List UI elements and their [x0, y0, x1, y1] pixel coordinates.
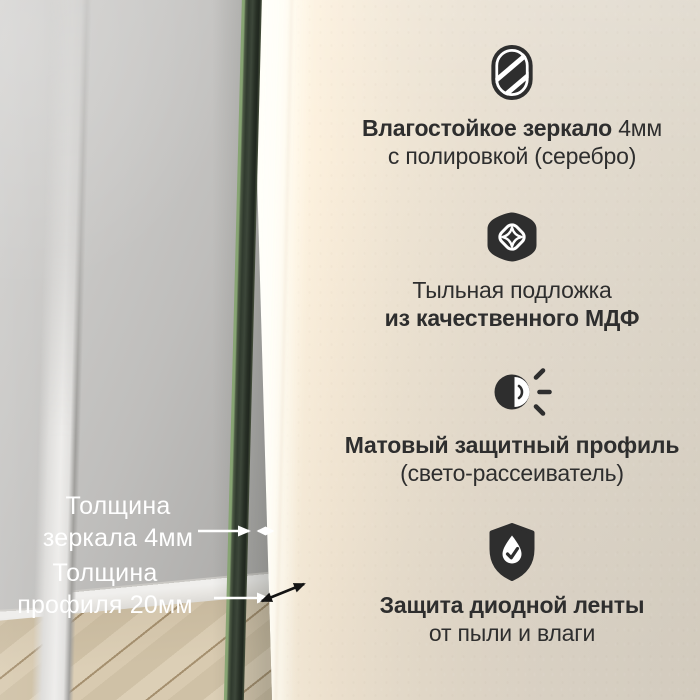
feature-text-line1: Тыльная подложка — [323, 277, 700, 305]
profile-thickness-label: Толщина профиля 20мм — [10, 557, 200, 621]
feature-text-line2: (свето-рассеиватель) — [323, 460, 700, 488]
feature-text-line2: с полировкой (серебро) — [323, 143, 700, 171]
mirror-icon — [323, 44, 700, 101]
product-infographic: Влагостойкое зеркало 4мм с полировкой (с… — [0, 0, 700, 700]
mirror-thickness-label: Толщина зеркала 4мм — [28, 490, 208, 554]
feature-text-line1: Защита диодной ленты — [323, 592, 700, 620]
mdf-backing-icon — [323, 210, 700, 264]
label-line2: зеркала 4мм — [28, 522, 208, 554]
label-line1: Толщина — [10, 557, 200, 589]
feature-text-line2: от пыли и влаги — [323, 620, 700, 648]
label-line2: профиля 20мм — [10, 589, 200, 621]
feature-text-line1: Влагостойкое зеркало 4мм — [323, 115, 700, 143]
feature-matte-profile: Матовый защитный профиль (свето-рассеива… — [323, 363, 700, 487]
feature-mdf-backing: Тыльная подложка из качественного МДФ — [323, 210, 700, 332]
label-line1: Толщина — [28, 490, 208, 522]
shield-check-icon — [323, 521, 700, 583]
feature-mirror: Влагостойкое зеркало 4мм с полировкой (с… — [323, 44, 700, 170]
feature-text-line2: из качественного МДФ — [323, 305, 700, 333]
feature-led-protection: Защита диодной ленты от пыли и влаги — [323, 521, 700, 647]
feature-text-line1: Матовый защитный профиль — [323, 432, 700, 460]
light-diffuser-icon — [323, 363, 700, 421]
